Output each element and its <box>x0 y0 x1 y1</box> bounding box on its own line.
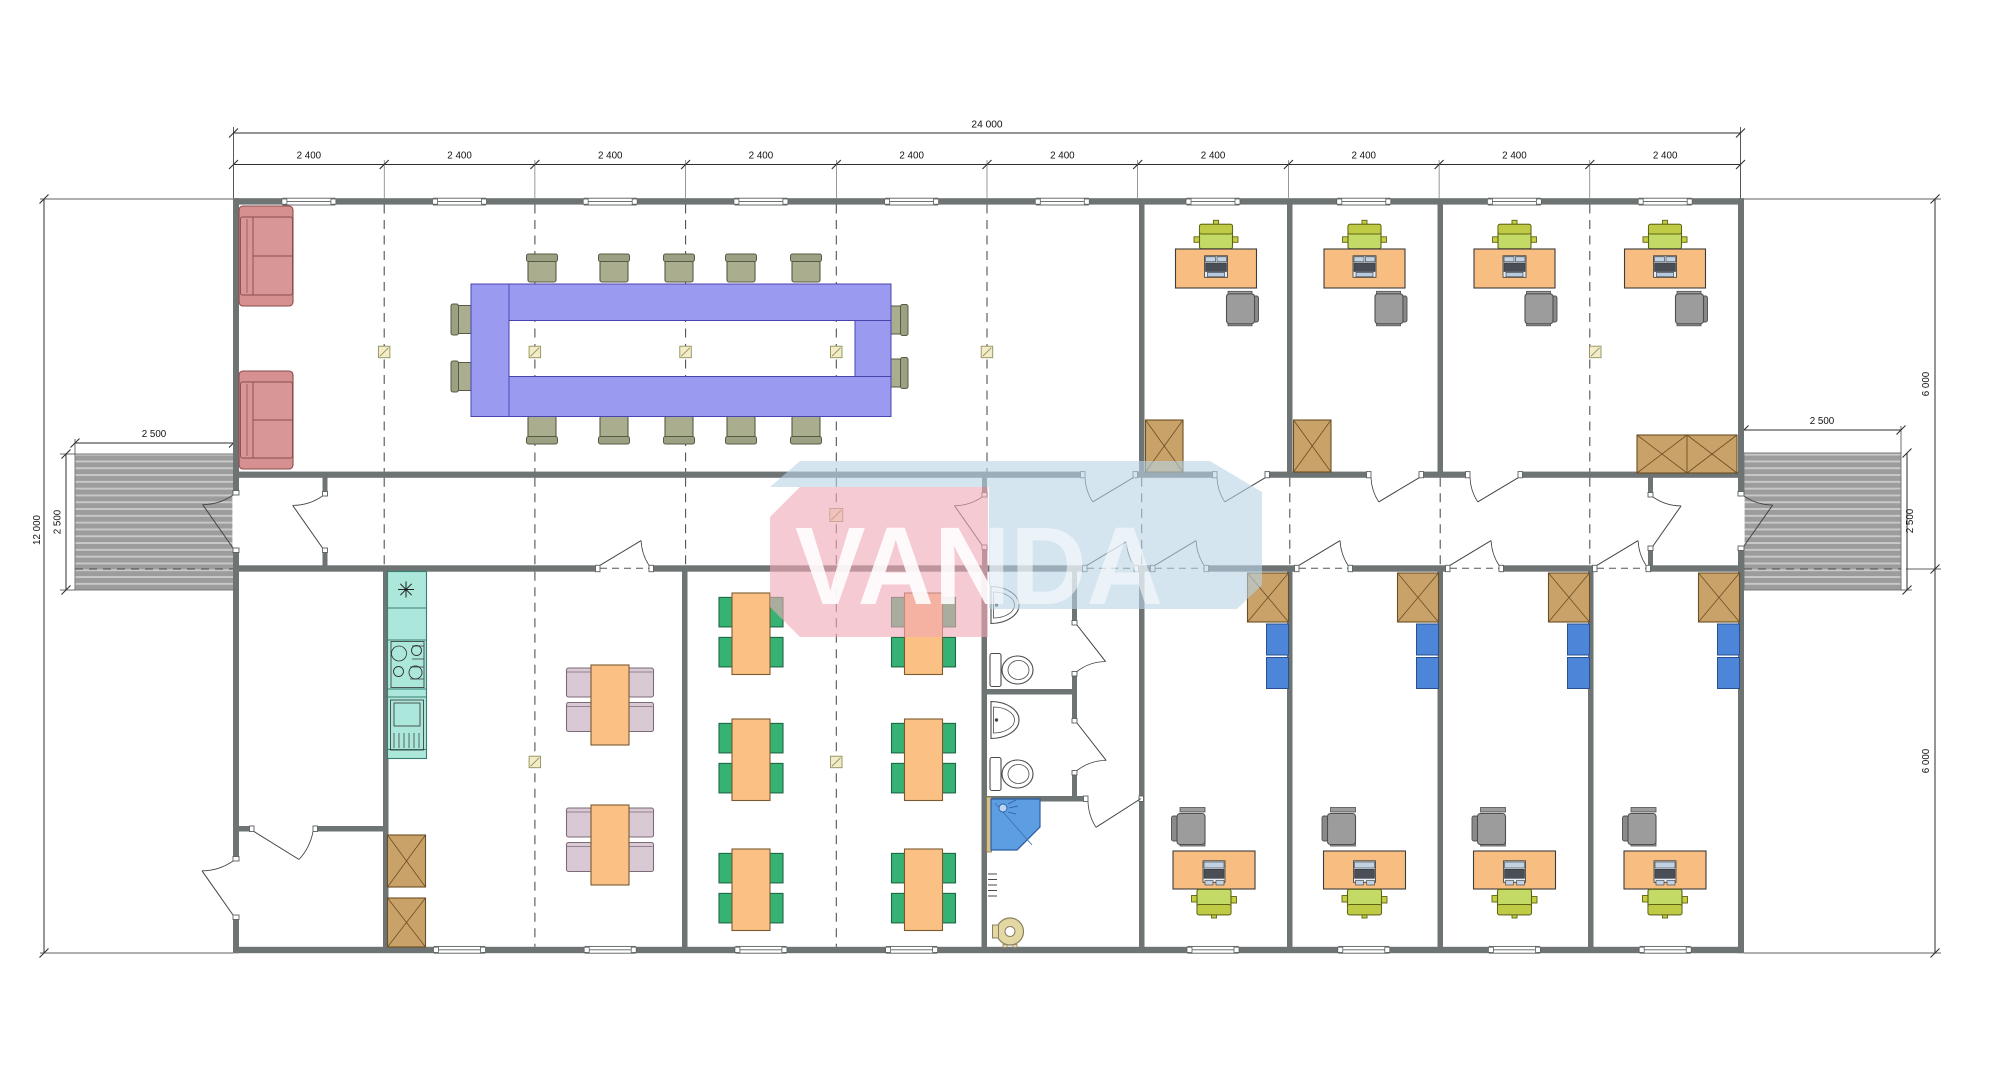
svg-text:2 400: 2 400 <box>749 151 774 162</box>
svg-text:6 000: 6 000 <box>1921 748 1932 773</box>
svg-text:2 500: 2 500 <box>1905 508 1916 533</box>
svg-text:2 400: 2 400 <box>447 151 472 162</box>
svg-text:2 400: 2 400 <box>598 151 623 162</box>
svg-text:2 500: 2 500 <box>1810 416 1835 427</box>
svg-text:2 400: 2 400 <box>297 151 322 162</box>
svg-text:2 500: 2 500 <box>53 509 64 534</box>
svg-text:2 400: 2 400 <box>1201 151 1226 162</box>
svg-text:6 000: 6 000 <box>1921 371 1932 396</box>
svg-text:2 400: 2 400 <box>899 151 924 162</box>
svg-text:2 400: 2 400 <box>1351 151 1376 162</box>
svg-text:2 400: 2 400 <box>1502 151 1527 162</box>
svg-text:24 000: 24 000 <box>971 120 1002 131</box>
svg-text:2 400: 2 400 <box>1653 151 1678 162</box>
svg-text:12 000: 12 000 <box>32 514 43 545</box>
svg-text:2 500: 2 500 <box>142 429 167 440</box>
svg-text:2 400: 2 400 <box>1050 151 1075 162</box>
